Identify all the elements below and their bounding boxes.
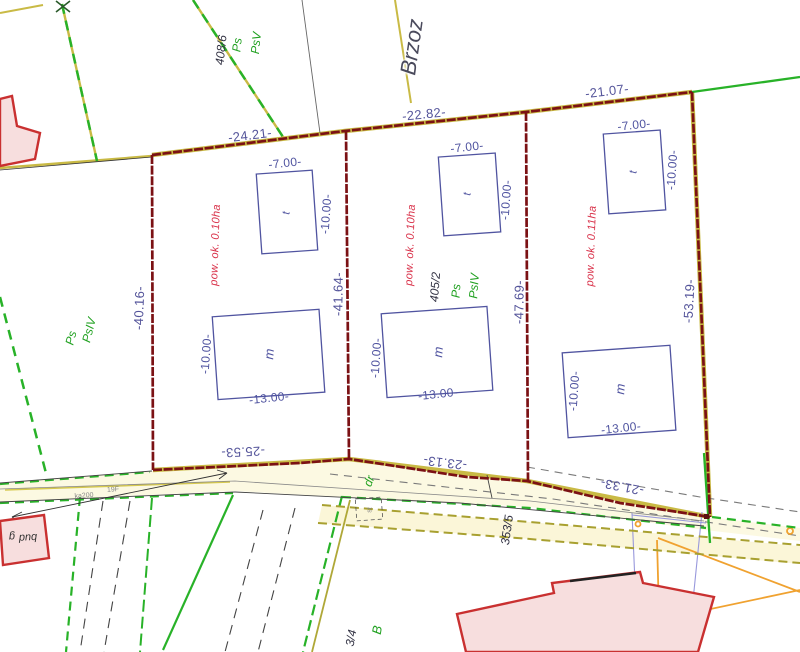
boundary-right	[692, 92, 710, 517]
green-lines	[0, 0, 800, 652]
cadastral-map: -24.21- -22.82- -21.07- -25.53- -23.13- …	[0, 0, 800, 652]
map-canvas	[0, 0, 800, 652]
thin-black-lines	[0, 0, 704, 526]
boundary-mid-1	[346, 131, 349, 459]
boundary-top	[152, 92, 692, 155]
building-bottom-right	[457, 572, 714, 652]
building-top-left	[0, 96, 40, 166]
parcel-boundaries	[152, 92, 710, 517]
yellow-boundary-lines	[0, 0, 710, 652]
side-road-surface	[318, 505, 800, 564]
building-gbud	[0, 515, 49, 565]
boundary-left	[152, 155, 153, 470]
boundary-mid-2	[526, 112, 528, 481]
planned-buildings	[212, 130, 676, 438]
